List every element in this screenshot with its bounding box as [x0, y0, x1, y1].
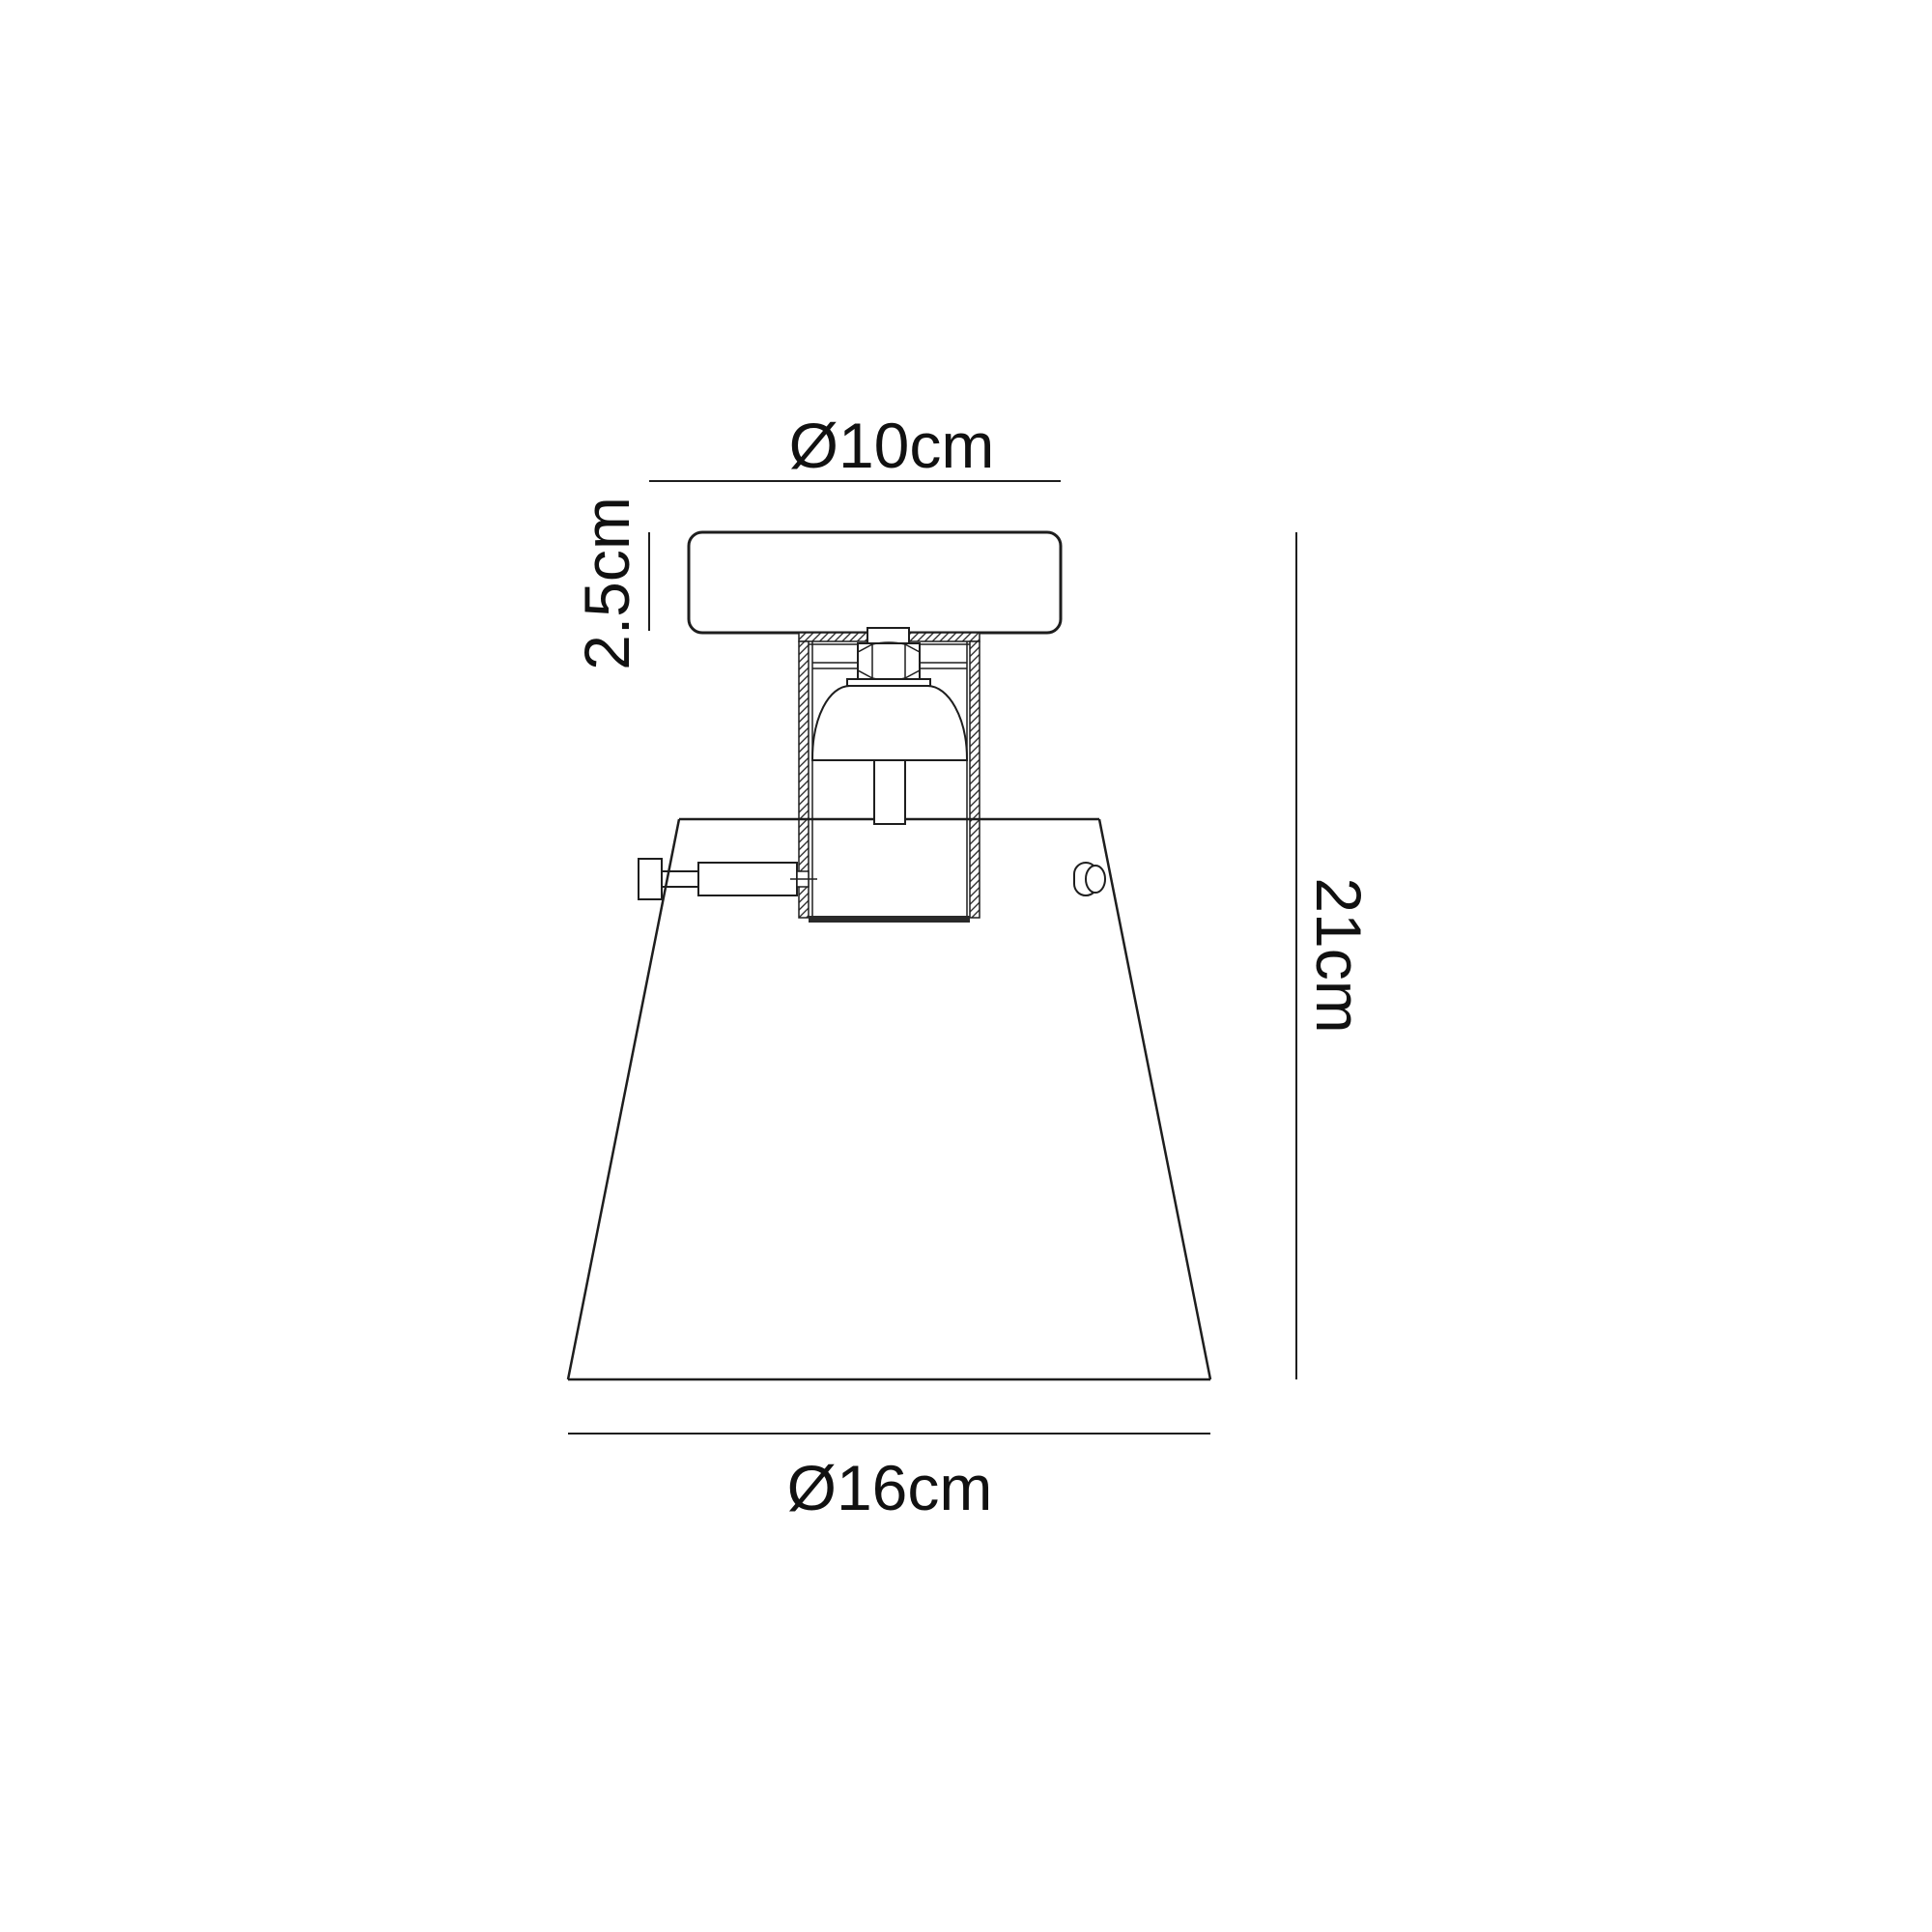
- holder-right-wall: [970, 641, 980, 918]
- canopy-plate: [689, 532, 1061, 633]
- label-shade-diameter: Ø16cm: [787, 1452, 993, 1523]
- shade-outline: [568, 819, 1210, 1379]
- bulb-dome: [812, 686, 967, 760]
- bulb-neck: [874, 760, 905, 824]
- label-overall-height: 21cm: [1303, 877, 1375, 1033]
- side-peg: [1074, 863, 1105, 895]
- technical-drawing-canvas: Ø10cm 2.5cm 21cm Ø16cm: [0, 0, 1932, 1932]
- holder-bottom-band: [809, 916, 970, 923]
- knob-head: [639, 859, 662, 899]
- threaded-nipple: [867, 628, 909, 643]
- label-canopy-height: 2.5cm: [571, 497, 642, 670]
- label-canopy-diameter: Ø10cm: [789, 410, 995, 481]
- ceiling-light-diagram: Ø10cm 2.5cm 21cm Ø16cm: [0, 0, 1932, 1932]
- socket-washer: [847, 679, 930, 686]
- hex-nut: [858, 642, 920, 680]
- knob-barrel: [698, 863, 797, 895]
